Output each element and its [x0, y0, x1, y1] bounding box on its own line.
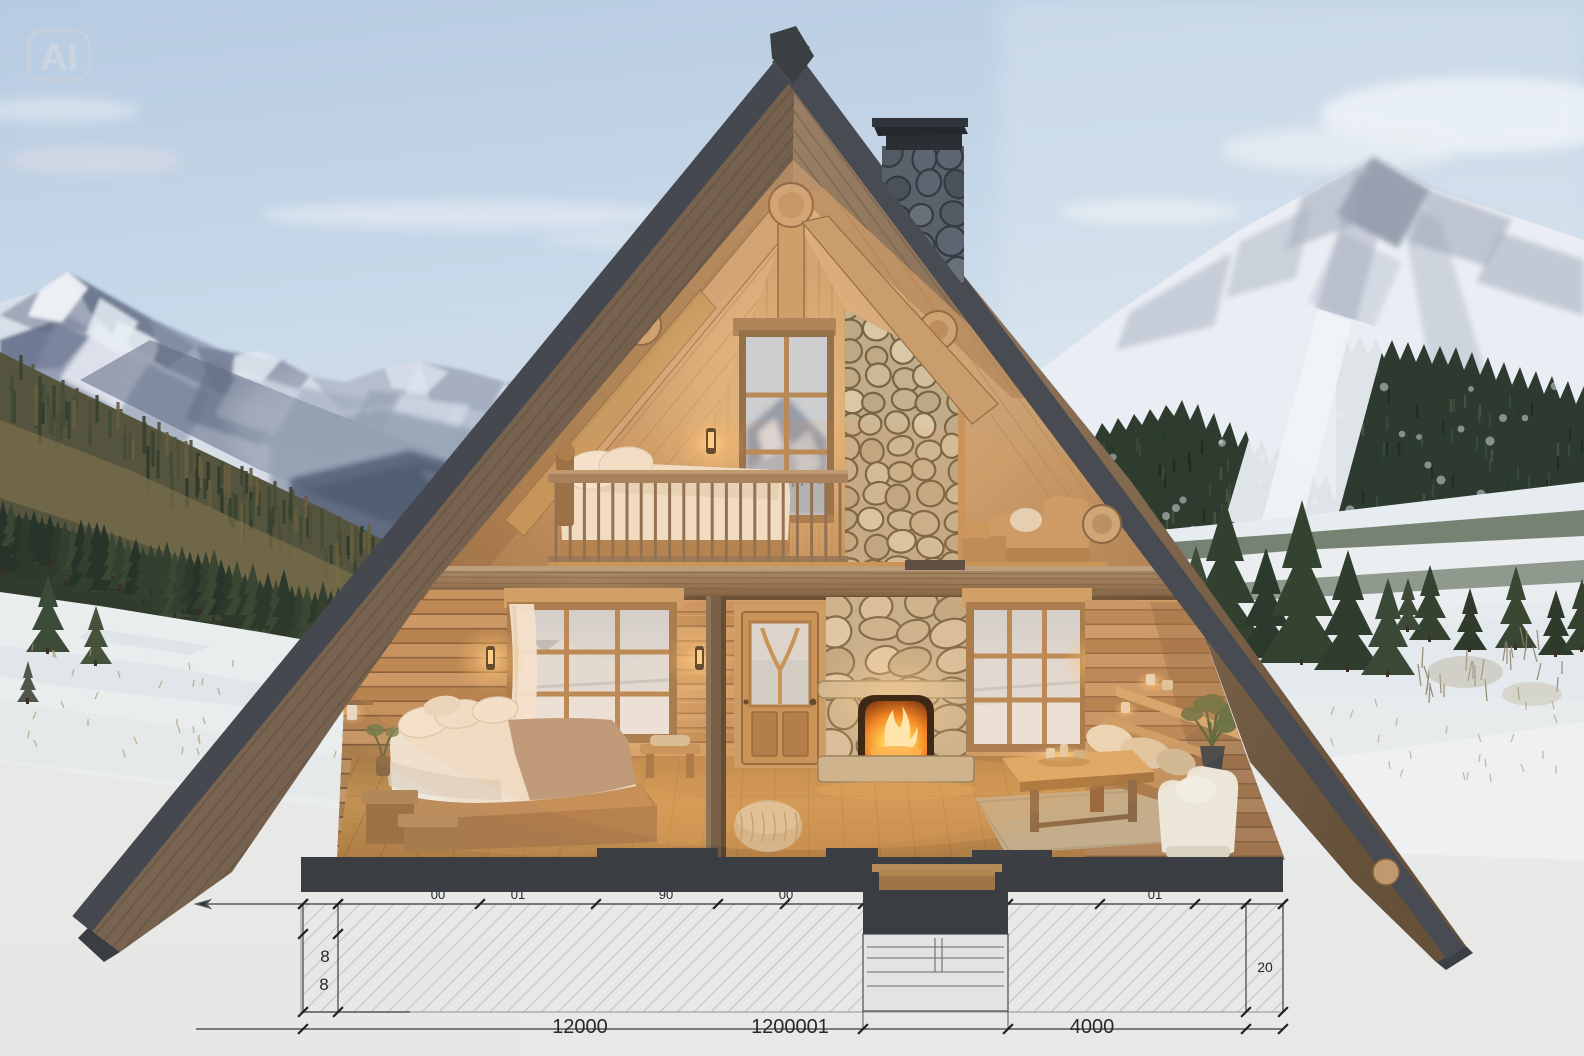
svg-text:8: 8 — [320, 947, 329, 966]
svg-text:AI: AI — [40, 37, 78, 79]
svg-text:20: 20 — [1257, 959, 1273, 975]
svg-text:8: 8 — [319, 975, 328, 994]
svg-text:1200001: 1200001 — [751, 1016, 829, 1038]
svg-text:4000: 4000 — [1070, 1016, 1115, 1038]
svg-text:12000: 12000 — [552, 1016, 608, 1038]
